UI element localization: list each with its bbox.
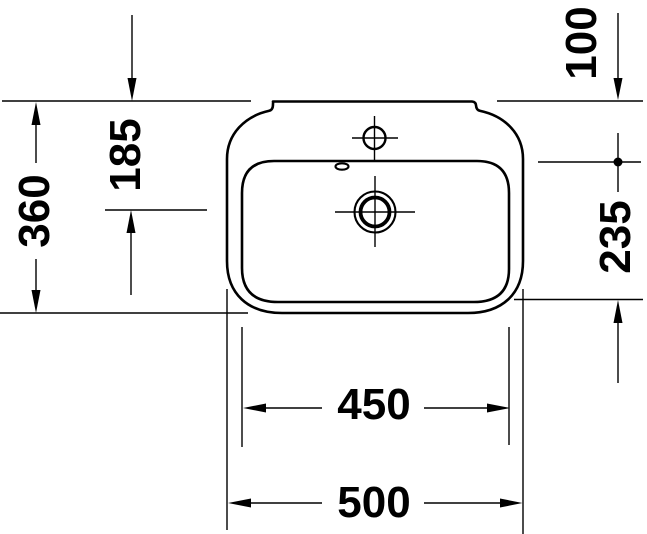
arrow-right-icon [487, 404, 510, 413]
tap-hole [352, 116, 398, 161]
dimension-label-185: 185 [101, 118, 150, 191]
washbasin-dimension-drawing: 360 185 100 235 [0, 0, 647, 534]
dimension-drain-center-depth: 185 [101, 15, 150, 295]
dimension-label-360: 360 [10, 174, 59, 247]
reference-lines [0, 101, 643, 534]
dimension-label-235: 235 [591, 200, 640, 273]
dimension-overall-width: 500 [228, 478, 523, 527]
overflow-ellipse [336, 163, 349, 169]
dimension-overall-depth: 360 [10, 102, 59, 313]
arrow-down-icon [614, 78, 623, 100]
dimension-label-500: 500 [337, 478, 410, 527]
overflow-hole [336, 163, 349, 169]
dimension-rim-to-basin-top: 100 [557, 6, 623, 192]
arrow-up-icon [32, 102, 41, 125]
arrow-down-icon [32, 290, 41, 313]
dimension-label-100: 100 [557, 6, 606, 79]
dot-terminator [614, 158, 623, 167]
technical-drawing-canvas: 360 185 100 235 [0, 0, 647, 534]
arrow-up-icon [127, 210, 136, 233]
arrow-up-icon [614, 300, 623, 323]
arrow-left-icon [243, 404, 266, 413]
arrow-left-icon [228, 499, 251, 508]
dimension-basin-width: 450 [243, 380, 510, 429]
drain-outlet [335, 176, 415, 247]
dimension-basin-depth: 235 [591, 200, 640, 383]
arrow-down-icon [128, 78, 137, 101]
arrow-right-icon [500, 499, 523, 508]
dimension-label-450: 450 [337, 380, 410, 429]
